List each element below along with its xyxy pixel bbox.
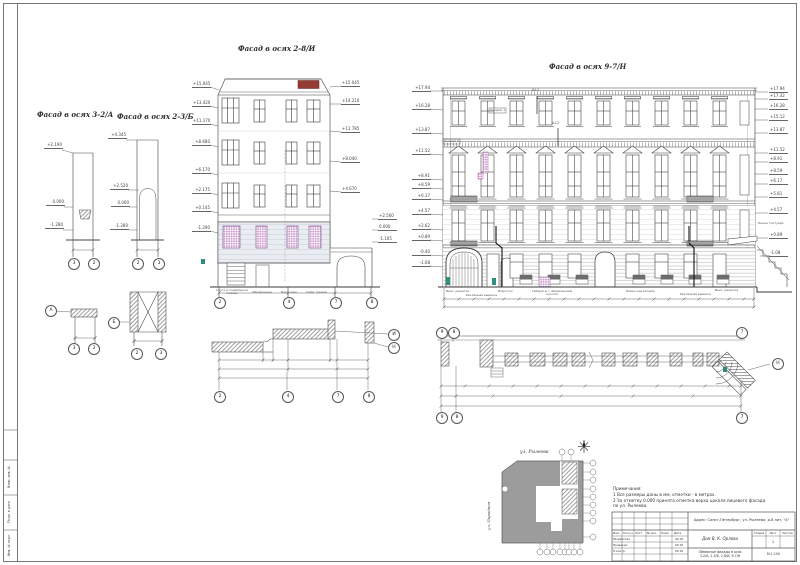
frame-side-label: Подп. и дата xyxy=(7,495,11,529)
elevation-mark: +14.210 xyxy=(341,99,360,105)
elevation-mark: +16.28 xyxy=(412,104,431,110)
axis-bubble: 8 xyxy=(451,412,463,424)
axis-bubble: 2 xyxy=(132,258,144,270)
elevation-mark: +8.91 xyxy=(769,157,788,163)
facade-note: Рекламная вывеска xyxy=(680,293,711,296)
notes-line: по ул. Рылеева. xyxy=(613,503,647,508)
elevation-mark: +6.17 xyxy=(769,179,788,185)
drawing-sheet: Фасад в осях 3-2/А Фасад в осях 2-3/Б Фа… xyxy=(0,0,800,565)
axis-bubble: 4 xyxy=(282,391,294,403)
stamp-listov-header: Листов xyxy=(780,531,795,535)
elevation-mark: +4.670 xyxy=(341,187,360,193)
stamp-col-header: Подп. xyxy=(661,531,669,535)
elevation-mark: +6.170 xyxy=(192,168,211,174)
stamp-object: Дом В. К. Орлова xyxy=(690,536,750,541)
axis-bubble: 3 xyxy=(155,348,167,360)
elevation-mark: -1.290 xyxy=(192,226,211,232)
elevation-mark: +0.89 xyxy=(769,233,788,239)
axis-bubble: И xyxy=(388,329,400,341)
elevation-mark: -1.105 xyxy=(378,237,397,243)
axis-bubble: 2 xyxy=(88,258,100,270)
elevation-mark: +13.420 xyxy=(192,101,211,107)
site-plan-linework xyxy=(502,440,596,555)
axis-bubble: 7 xyxy=(736,412,748,424)
stamp-col-header: № док. xyxy=(647,531,657,535)
elevation-mark: +2.190 xyxy=(44,143,63,149)
elevation-mark: +13.87 xyxy=(412,128,431,134)
facade-note: Рекламная вывеска xyxy=(466,294,497,297)
stamp-date: 09.18 xyxy=(675,537,683,541)
stamp-drawing-title: 3-2/А, 2-3/Б, 2-8/И, 9-7/Н xyxy=(690,554,750,558)
axis-bubble: 8 xyxy=(363,391,375,403)
notes-title: Примечания: xyxy=(613,486,642,491)
elevation-mark: +2.520 xyxy=(110,184,129,190)
facade-note: Вент. решетка xyxy=(715,289,738,292)
probe-label: Ш-2 xyxy=(552,122,559,125)
facade-note: Сайд. панель xyxy=(306,291,327,294)
elevation-mark: +13.87 xyxy=(769,128,788,134)
facade-a-linework xyxy=(62,150,100,257)
elevation-mark: +17.32 xyxy=(769,94,788,100)
stamp-col-header: Изм. xyxy=(613,531,620,535)
stamp-row-role: Разработал xyxy=(613,537,630,541)
facade-note: Обрамление xyxy=(252,291,272,294)
stamp-address: Адрес: Санкт-Петербург, ул. Рылеева, д.8… xyxy=(690,518,793,522)
elevation-mark: +2.175 xyxy=(192,188,211,194)
stamp-col-header: Дата xyxy=(674,531,681,535)
frame-side-label: Инв. № подл. xyxy=(7,530,11,560)
elevation-mark: +4.345 xyxy=(108,133,127,139)
detail-a-linework xyxy=(55,309,97,343)
elevation-mark: 0.000 xyxy=(111,201,130,207)
axis-bubble: 4 xyxy=(283,297,295,309)
north-arrow-icon xyxy=(578,440,590,453)
axis-bubble: 9 xyxy=(436,327,448,339)
elevation-mark: -1.08 xyxy=(769,251,788,257)
elevation-mark: +0.145 xyxy=(192,206,211,212)
elevation-mark: +11.170 xyxy=(192,119,211,125)
street-label-left: ул. Парадная xyxy=(486,502,491,530)
drawing-linework xyxy=(0,0,800,565)
probe-box-label: Зондаж 1 xyxy=(490,109,505,112)
axis-bubble: 3 xyxy=(68,258,80,270)
elevation-mark: +5.81 xyxy=(769,192,788,198)
axis-bubble: 2 xyxy=(214,297,226,309)
elevation-mark: +8.91 xyxy=(412,174,431,180)
axis-bubble: Б xyxy=(108,317,120,329)
facade-right-linework xyxy=(430,88,792,309)
stamp-col-header: Лист xyxy=(635,531,642,535)
facade-note: Навес над входом xyxy=(626,290,655,293)
street-label-top: ул. Рылеева xyxy=(520,450,549,455)
probe-label: Ш-1 xyxy=(532,89,539,92)
axis-bubble: 9 xyxy=(436,412,448,424)
plan-center-linework xyxy=(212,320,388,390)
notes-line: 1 Все размеры даны в мм, отметки - в мет… xyxy=(613,492,716,497)
facade-a-title: Фасад в осях 3-2/А xyxy=(37,110,113,119)
stamp-date: 09.18 xyxy=(675,549,683,553)
elevation-mark: +0.89 xyxy=(412,235,431,241)
elevation-mark: +8.040 xyxy=(341,157,360,163)
facade-note: Габариты с обрамлением цоколя xyxy=(528,290,576,297)
stamp-row-role: Проверил xyxy=(613,543,627,547)
elevation-mark: +4.57 xyxy=(769,208,788,214)
detail-b-linework xyxy=(118,292,166,346)
probe-box-label: Зондаж 2 xyxy=(444,140,459,143)
facade-b-title: Фасад в осях 2-3/Б xyxy=(117,112,194,121)
elevation-mark: 0.000 xyxy=(46,200,65,206)
stamp-row-role: Н.контр. xyxy=(613,549,626,553)
elevation-mark: +6.17 xyxy=(412,194,431,200)
elevation-mark: -1.280 xyxy=(45,223,64,229)
stamp-date: 09.18 xyxy=(675,543,683,547)
elevation-mark: 0.000 xyxy=(378,225,397,231)
plan-right-linework xyxy=(437,328,770,412)
elevation-mark: -1.08 xyxy=(412,261,431,267)
elevation-mark: +2.560 xyxy=(378,214,397,220)
axis-bubble: 8 xyxy=(366,297,378,309)
stamp-stage-header: Стадия xyxy=(752,531,766,535)
axis-bubble: 7 xyxy=(330,297,342,309)
elevation-mark: +16.28 xyxy=(769,104,788,110)
elevation-mark: +4.57 xyxy=(412,209,431,215)
stamp-sheet-number: 1 xyxy=(766,540,780,544)
elevation-mark: +17.94 xyxy=(412,86,431,92)
axis-bubble: 7 xyxy=(736,327,748,339)
facade-b-linework xyxy=(126,140,164,257)
elevation-mark: +11.785 xyxy=(341,127,360,133)
axis-bubble: 7 xyxy=(332,391,344,403)
facade-center-title: Фасад в осях 2-8/И xyxy=(238,44,315,53)
elevation-mark: +17.94 xyxy=(769,87,788,93)
elevation-mark: +8.59 xyxy=(769,169,788,175)
axis-bubble: 2 xyxy=(214,391,226,403)
axis-bubble: Н xyxy=(388,342,400,354)
axis-bubble: 8 xyxy=(448,327,460,339)
notes-line: 2 За отметку 0.000 принята отметка верха… xyxy=(613,498,765,503)
elevation-mark: +11.52 xyxy=(769,148,788,154)
facade-right-title: Фасад в осях 9-7/Н xyxy=(549,62,626,71)
axis-bubble: 2 xyxy=(88,343,100,355)
elevation-mark: +15.045 xyxy=(341,81,360,87)
axis-bubble: А xyxy=(45,305,57,317)
elevation-mark: +2.62 xyxy=(412,224,431,230)
elevation-mark: -1.280 xyxy=(110,224,129,230)
elevation-mark: +15.12 xyxy=(769,115,788,121)
axis-bubble: 3 xyxy=(153,258,165,270)
elevation-mark: -0.40 xyxy=(412,250,431,256)
elevation-mark: +8.59 xyxy=(412,183,431,189)
sidewalk-note: Линия тротуара xyxy=(758,222,783,225)
axis-bubble: 3 xyxy=(68,343,80,355)
axis-bubble: 2 xyxy=(131,348,143,360)
elevation-mark: +8.680 xyxy=(192,140,211,146)
facade-note: Спуск в подвальное помещ. xyxy=(216,289,248,296)
frame-side-label: Взам. инв. № xyxy=(7,460,11,494)
elevation-mark: +11.52 xyxy=(412,149,431,155)
facade-note: Вент. реш. xyxy=(281,291,298,294)
stamp-list-header: Лист xyxy=(766,531,780,535)
stamp-scale: М 1:100 xyxy=(752,552,795,556)
axis-bubble: Н xyxy=(772,358,784,370)
facade-note: Водосток xyxy=(498,290,513,293)
stamp-col-header: Кол.уч. xyxy=(623,531,634,535)
elevation-mark: +15.045 xyxy=(192,82,211,88)
